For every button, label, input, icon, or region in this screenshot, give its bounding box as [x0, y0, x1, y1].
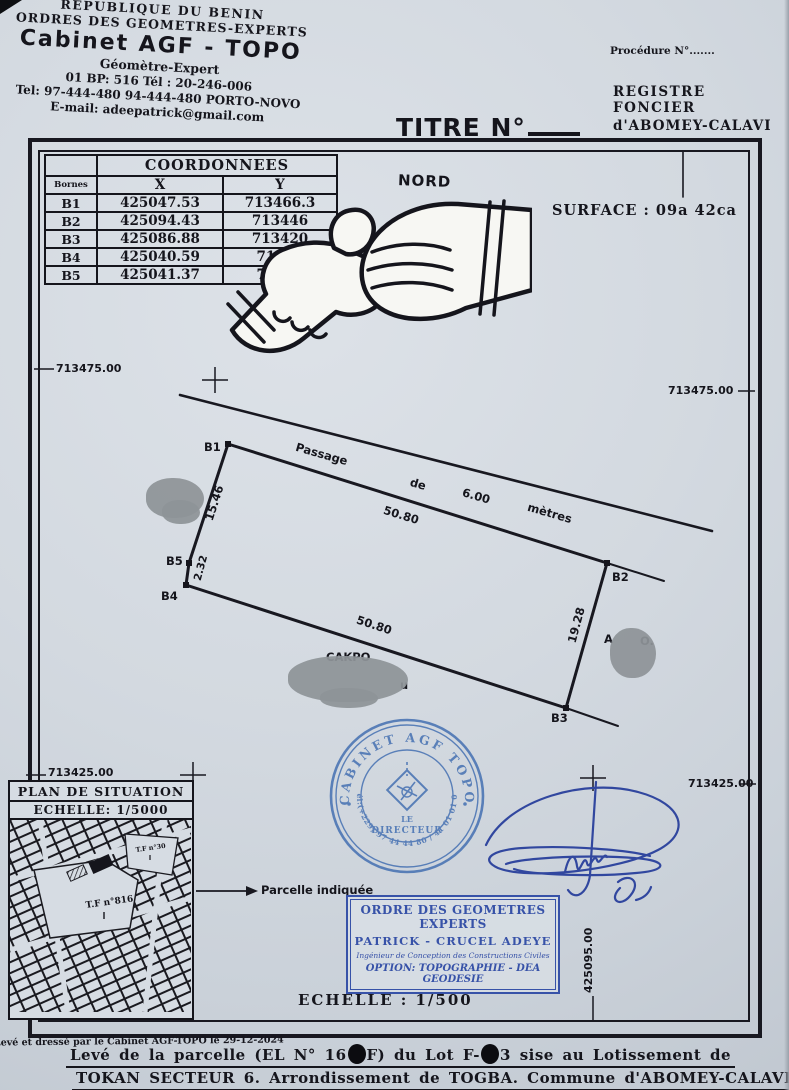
handshake-clipart	[222, 182, 532, 367]
cell-borne: B1	[45, 194, 97, 212]
borne-label-b5: B5	[166, 554, 183, 568]
col-header-bornes: Bornes	[45, 176, 97, 194]
cell-borne: B2	[45, 212, 97, 230]
redaction-blob	[610, 628, 656, 678]
table-corner-cell	[45, 155, 97, 176]
stamp-directeur: DIRECTEUR	[371, 826, 442, 836]
cell-borne: B4	[45, 248, 97, 266]
surface-label: SURFACE : 09a 42ca	[552, 202, 737, 219]
situation-scale: ECHELLE: 1/5000	[10, 802, 192, 820]
borne-label-b3: B3	[551, 711, 568, 725]
grid-label-713425-left: 713425.00	[48, 766, 113, 779]
order-role: Ingénieur de Conception des Construction…	[353, 951, 553, 960]
borne-label-b1: B1	[204, 440, 221, 454]
signature	[468, 770, 708, 920]
stamp-le: LE	[401, 814, 413, 824]
situation-plan-box: PLAN DE SITUATION ECHELLE: 1/5000 T.F n°…	[8, 780, 194, 1020]
grid-label-713475-right: 713475.00	[668, 384, 733, 397]
scan-edge-shadow	[784, 0, 789, 1090]
director-stamp: CABINET AGF TOPO Tél:(+229) 97 44 44 80 …	[327, 716, 487, 876]
cell-x: 425086.88	[97, 230, 223, 248]
cell-x: 425094.43	[97, 212, 223, 230]
redaction-blob	[162, 500, 200, 524]
borne-label-b4: B4	[161, 589, 178, 603]
cell-x: 425040.59	[97, 248, 223, 266]
redaction-blob	[320, 688, 378, 708]
situation-title: PLAN DE SITUATION	[10, 782, 192, 802]
cell-x: 425041.37	[97, 266, 223, 284]
borne-label-b2: B2	[612, 570, 629, 584]
grid-label-425095: 425095.00	[582, 928, 595, 993]
main-scale-label: ECHELLE : 1/500	[298, 991, 473, 1009]
cell-x: 425047.53	[97, 194, 223, 212]
table-title: COORDONNEES	[97, 155, 337, 176]
pointer-arrow	[196, 886, 258, 896]
situation-map: T.F n°816 T.F n°30	[10, 820, 191, 1012]
grid-label-713475-left: 713475.00	[56, 362, 121, 375]
cell-borne: B3	[45, 230, 97, 248]
col-header-x: X	[97, 176, 223, 194]
order-option: OPTION: TOPOGRAPHIE - DEA GEODESIE	[353, 963, 553, 985]
scanned-survey-document: REPUBLIQUE DU BENIN ORDRES DES GEOMETRES…	[0, 0, 789, 1090]
order-name: PATRICK - CRUCEL ADEYE	[353, 934, 553, 948]
cell-borne: B5	[45, 266, 97, 284]
